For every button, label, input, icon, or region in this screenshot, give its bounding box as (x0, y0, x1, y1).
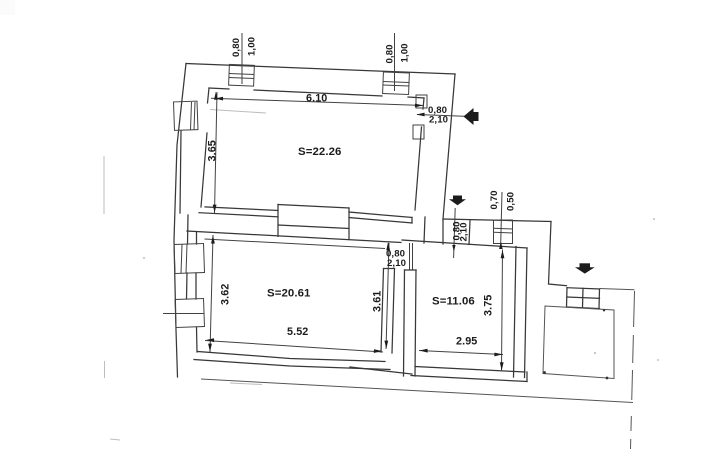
svg-text:5.52: 5.52 (287, 326, 308, 338)
svg-text:3.75: 3.75 (483, 295, 495, 316)
svg-text:1,00: 1,00 (400, 43, 411, 62)
svg-text:1,00: 1,00 (247, 37, 258, 56)
svg-text:2,10: 2,10 (387, 258, 406, 269)
svg-text:S=11.06: S=11.06 (432, 296, 475, 308)
svg-text:2,10: 2,10 (459, 222, 470, 241)
svg-text:0,80: 0,80 (231, 38, 242, 57)
svg-text:3.62: 3.62 (220, 284, 232, 305)
svg-text:2,10: 2,10 (429, 115, 448, 126)
svg-text:6.10: 6.10 (306, 93, 327, 105)
svg-text:0,70: 0,70 (489, 190, 500, 209)
svg-text:S=20.61: S=20.61 (267, 288, 311, 300)
svg-text:S=22.26: S=22.26 (298, 146, 341, 158)
svg-text:3.61: 3.61 (372, 291, 384, 312)
svg-text:3.65: 3.65 (207, 140, 219, 161)
svg-text:0,50: 0,50 (506, 192, 517, 211)
svg-text:0,80: 0,80 (385, 44, 396, 63)
svg-text:2.95: 2.95 (456, 336, 477, 348)
